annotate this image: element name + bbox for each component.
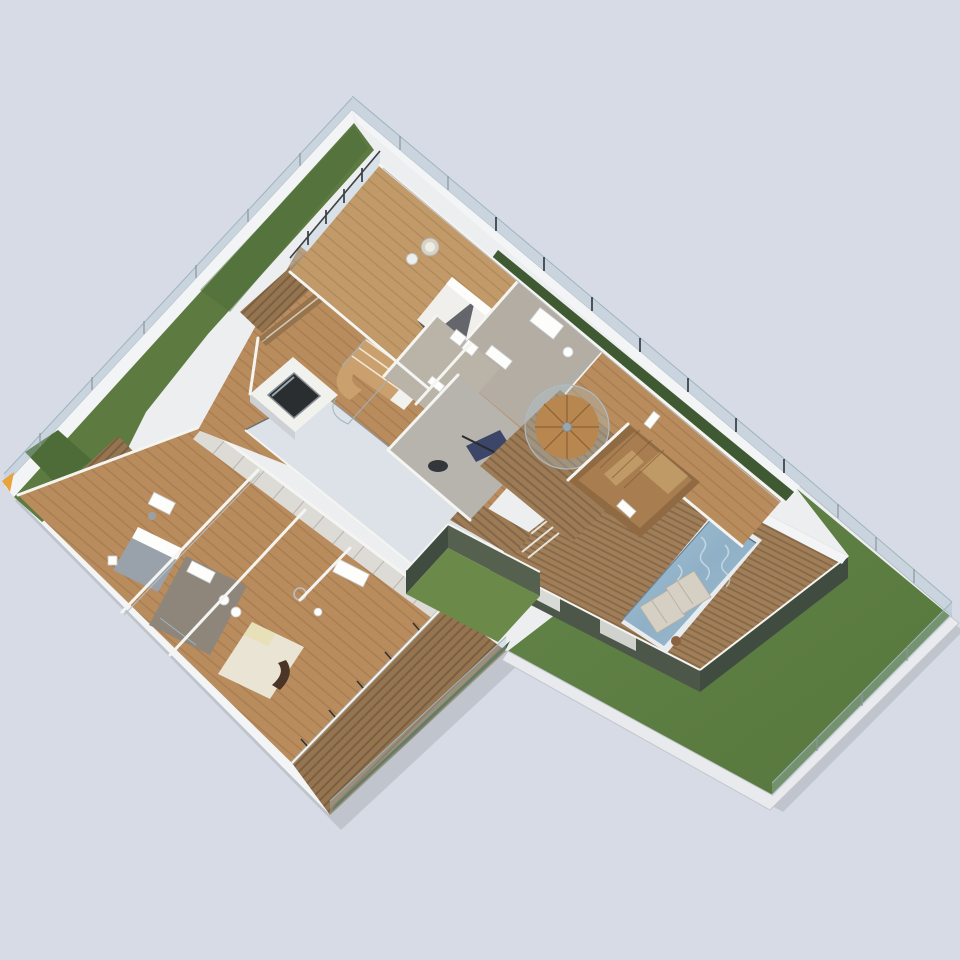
bidet	[231, 607, 241, 617]
armchair-seat	[425, 242, 435, 252]
bath-toilet	[563, 347, 573, 357]
side-table	[671, 636, 681, 646]
floorplan-svg	[0, 0, 960, 960]
nightstand-1	[108, 556, 117, 565]
desk-chair	[148, 512, 156, 520]
drum-table	[407, 254, 418, 265]
floorplan-render	[0, 0, 960, 960]
spiral-pole	[563, 423, 572, 432]
stool	[314, 608, 322, 616]
exercise-bike	[428, 460, 448, 472]
